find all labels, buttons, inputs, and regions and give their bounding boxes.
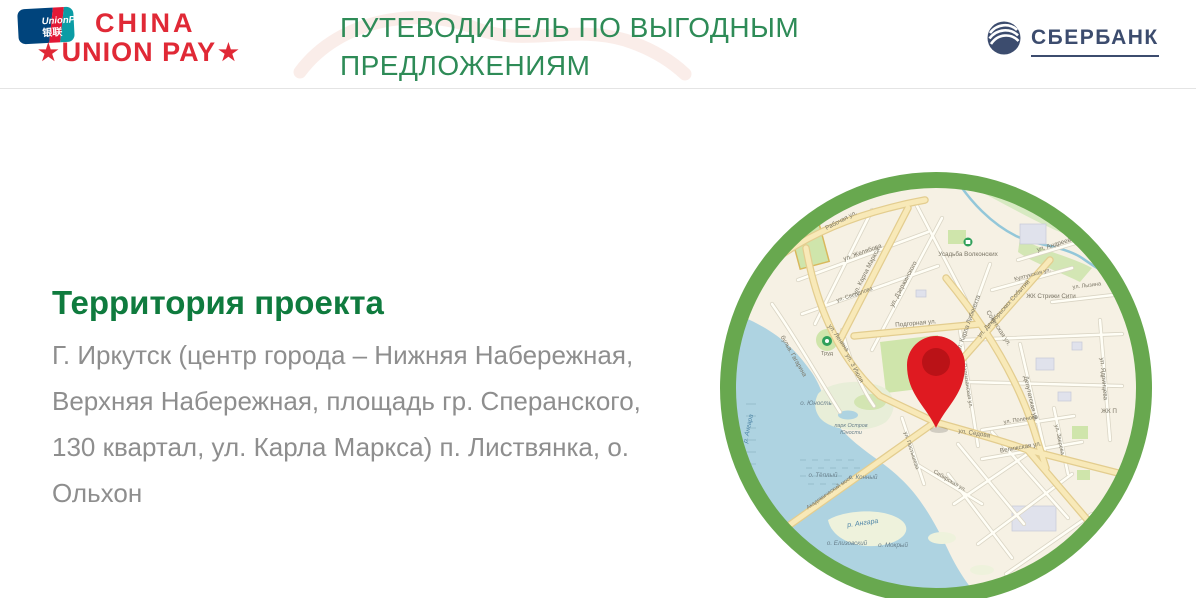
- section-heading: Территория проекта: [52, 284, 384, 322]
- map-label-park-2: Юности: [840, 430, 862, 436]
- unionpay-brand-line2: ★ UNION PAY ★: [36, 37, 242, 68]
- page-title-line2: ПРЕДЛОЖЕНИЯМ: [340, 47, 799, 85]
- body-line: Ольхон: [52, 470, 641, 516]
- museum-icon: [964, 238, 973, 247]
- unionpay-card-text: UnionPay: [41, 14, 75, 27]
- star-left-icon: ★: [36, 39, 62, 66]
- body-line: Г. Иркутск (центр города – Нижняя Набере…: [52, 332, 641, 378]
- star-right-icon: ★: [216, 39, 242, 66]
- map-label-teply: о. Тёплый: [809, 472, 839, 479]
- map-label-usadba: Усадьба Волконских: [938, 250, 998, 258]
- page-title-line1: ПУТЕВОДИТЕЛЬ ПО ВЫГОДНЫМ: [340, 9, 799, 47]
- sberbank-circle-icon: [986, 20, 1022, 56]
- page-title: ПУТЕВОДИТЕЛЬ ПО ВЫГОДНЫМ ПРЕДЛОЖЕНИЯМ: [340, 9, 799, 85]
- territory-description: Г. Иркутск (центр города – Нижняя Набере…: [52, 332, 641, 516]
- map-label-mokry: о. Мокрый: [878, 542, 908, 549]
- sberbank-logo: СБЕРБАНК: [986, 20, 1159, 57]
- slide-page: UnionPay 银联 CHINA ★ UNION PAY ★ ПУТЕВОДИ…: [0, 0, 1196, 598]
- body-line: 130 квартал, ул. Карла Маркса) п. Листвя…: [52, 424, 641, 470]
- map-image: Рабочая ул. ул. Желябова ул. Свердлова у…: [720, 172, 1152, 598]
- unionpay-brand-text: UNION PAY: [62, 37, 217, 68]
- map-label-zhk-strizhi: ЖК Стрижи Сити: [1026, 293, 1076, 300]
- map-label-yunost: о. Юность: [800, 400, 832, 407]
- unionpay-brand-line1: CHINA: [95, 8, 196, 39]
- map-label-trud: Труд: [821, 351, 834, 357]
- header-divider: [0, 88, 1196, 89]
- sberbank-wordmark: СБЕРБАНК: [1031, 26, 1159, 57]
- stadium-icon: [822, 336, 832, 346]
- map-label-elizovsky: о. Елизовский: [827, 540, 868, 547]
- map-label-park-1: парк Остров: [834, 423, 867, 429]
- map-label-zhk-parus: ЖК П: [1101, 408, 1117, 415]
- body-line: Верхняя Набережная, площадь гр. Сперанск…: [52, 378, 641, 424]
